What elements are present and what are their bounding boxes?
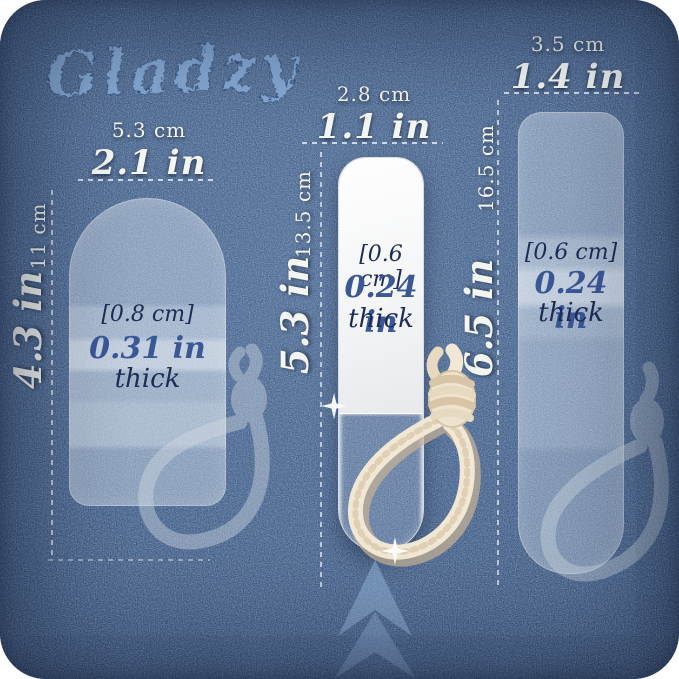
brand-logo-text: Gladzy bbox=[43, 28, 301, 110]
width-measure-line-large bbox=[504, 92, 642, 94]
length-in-medium: 5.3 in bbox=[273, 256, 317, 374]
brand-logo: Gladzy bbox=[28, 4, 328, 134]
width-label-medium: 2.8 cm 1.1 in bbox=[300, 82, 448, 147]
length-cm-small: 11 cm bbox=[26, 203, 50, 270]
product-card: Gladzy 5.3 cm 2.1 in 11 cm 4.3 in [0.8 c… bbox=[0, 0, 679, 679]
thickness-word-small: thick bbox=[69, 364, 226, 394]
length-in-small: 4.3 in bbox=[6, 271, 50, 389]
thickness-word-medium: thick bbox=[339, 304, 423, 334]
width-cm-small: 5.3 cm bbox=[73, 118, 225, 142]
length-measure-end-small bbox=[48, 559, 210, 561]
length-measure-line-medium bbox=[320, 152, 322, 588]
width-cm-medium: 2.8 cm bbox=[300, 82, 448, 106]
thickness-word-large: thick bbox=[518, 298, 624, 328]
length-cm-large: 16.5 cm bbox=[474, 124, 498, 212]
foot-file-large: [0.6 cm] 0.24 in thick bbox=[518, 112, 624, 574]
width-label-large: 3.5 cm 1.4 in bbox=[494, 32, 642, 97]
width-label-small: 5.3 cm 2.1 in bbox=[73, 118, 225, 183]
width-in-medium: 1.1 in bbox=[300, 107, 448, 147]
width-measure-line-small bbox=[78, 179, 218, 181]
thickness-cm-small: [0.8 cm] bbox=[69, 302, 226, 327]
clear-glass-section-medium bbox=[339, 414, 423, 551]
width-in-large: 1.4 in bbox=[494, 57, 642, 97]
length-cm-medium: 13.5 cm bbox=[291, 170, 315, 258]
thickness-cm-large: [0.6 cm] bbox=[518, 240, 624, 265]
foot-file-small: [0.8 cm] 0.31 in thick bbox=[69, 198, 226, 506]
width-cm-large: 3.5 cm bbox=[494, 32, 642, 56]
length-in-large: 6.5 in bbox=[457, 259, 501, 377]
foot-file-medium: [0.6 cm] 0.24 in thick bbox=[338, 157, 424, 552]
thickness-in-small: 0.31 in bbox=[69, 331, 226, 366]
length-measure-line-small bbox=[51, 190, 53, 558]
width-in-small: 2.1 in bbox=[73, 143, 225, 183]
width-measure-line-medium bbox=[302, 142, 443, 144]
